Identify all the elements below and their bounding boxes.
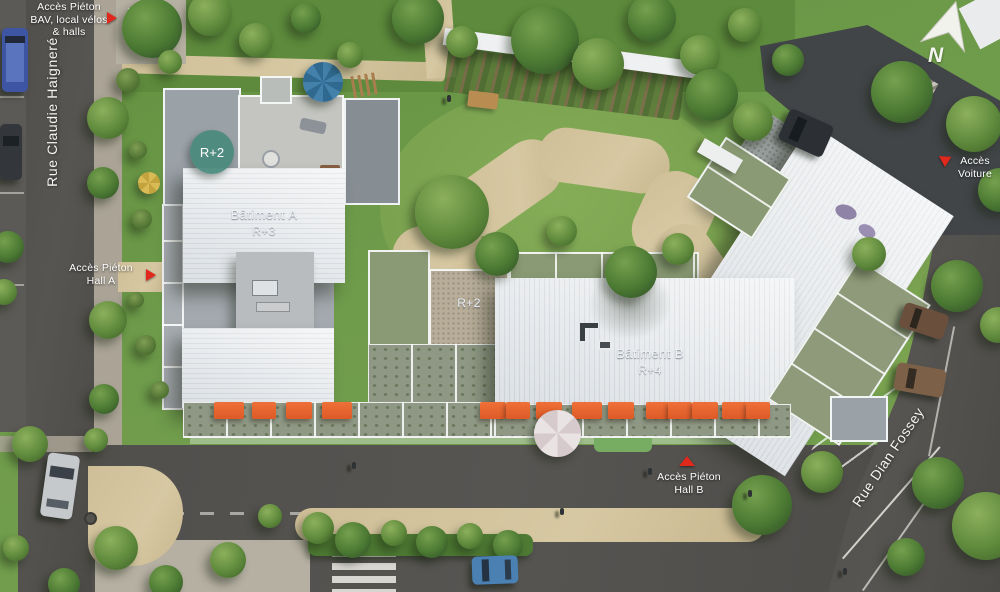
tree <box>128 292 144 308</box>
tree <box>136 335 156 355</box>
label-acces-bav: Accès Piéton BAV, local vélos & halls <box>22 1 116 39</box>
terrace-awning <box>646 402 670 419</box>
tree <box>772 44 804 76</box>
tree <box>149 565 183 592</box>
label-line: Hall A <box>60 275 142 288</box>
tree <box>416 526 448 558</box>
umbrella-yellow <box>138 172 160 194</box>
tree <box>475 232 519 276</box>
red-arrow-right-icon <box>146 269 156 281</box>
label-line: BAV, local vélos <box>22 14 116 27</box>
tree <box>662 233 694 265</box>
person <box>748 490 752 497</box>
terrace-awning <box>692 402 718 419</box>
label-batiment-b: Bâtiment B R+4 <box>505 346 795 377</box>
wood-frame <box>350 72 381 99</box>
terrace-awning <box>252 402 276 419</box>
car-glass <box>909 308 922 329</box>
tree <box>946 96 1000 152</box>
tree <box>887 538 925 576</box>
core-b-mark <box>580 323 585 341</box>
car-glass <box>46 498 69 509</box>
tree <box>48 568 80 592</box>
label-acces-hall-a: Accès Piéton Hall A <box>60 262 142 287</box>
car-glass <box>905 368 916 389</box>
tree <box>94 526 138 570</box>
tree <box>728 8 762 42</box>
tree <box>337 42 363 68</box>
tree <box>151 381 169 399</box>
terrace-a-east <box>344 98 400 205</box>
label-line: Accès Piéton <box>653 471 725 484</box>
car-dark <box>0 124 22 180</box>
tree <box>547 216 577 246</box>
tree <box>302 512 334 544</box>
label-line: Accès <box>950 155 1000 168</box>
umbrella-blue <box>303 62 343 102</box>
tree <box>511 6 579 74</box>
terrace-awning <box>668 402 692 419</box>
tree <box>89 301 127 339</box>
car-glass <box>49 466 74 480</box>
label-acces-hall-b: Accès Piéton Hall B <box>653 471 725 496</box>
red-arrow-right-icon <box>107 12 117 24</box>
tree <box>129 141 147 159</box>
tree <box>122 0 182 58</box>
badge-r2: R+2 <box>190 130 234 174</box>
manhole <box>84 512 97 525</box>
label-acces-voiture: Accès Voiture <box>950 155 1000 180</box>
terrace-awning <box>572 402 602 419</box>
car-glass <box>482 559 490 581</box>
tree <box>158 50 182 74</box>
terrace-awning <box>480 402 506 419</box>
crosswalk <box>332 550 396 592</box>
terrace-awning <box>746 402 770 419</box>
tree <box>686 69 738 121</box>
terrace-awning <box>608 402 634 419</box>
tree <box>3 535 29 561</box>
car-glass <box>3 136 19 146</box>
person <box>352 462 356 469</box>
terrace-mid-west <box>368 250 430 346</box>
tree <box>852 237 886 271</box>
tree <box>733 101 773 141</box>
skylight <box>252 280 278 296</box>
terrace-awning <box>286 402 312 419</box>
tree <box>84 428 108 452</box>
roof-a-south <box>182 328 334 408</box>
tree <box>415 175 489 249</box>
north-letter: N <box>928 44 943 68</box>
van-roof <box>6 42 24 82</box>
building-floors: R+4 <box>505 363 795 377</box>
tree <box>457 523 483 549</box>
label-line: Hall B <box>653 484 725 497</box>
red-arrow-up-icon <box>679 456 695 466</box>
tree <box>732 475 792 535</box>
tree <box>258 504 282 528</box>
tree <box>871 61 933 123</box>
table <box>262 150 280 168</box>
terrace-awning <box>322 402 352 419</box>
garden-mid <box>368 344 508 406</box>
label-batiment-a: Bâtiment A R+3 <box>183 207 345 238</box>
car-glass <box>505 559 512 579</box>
building-name: Bâtiment B <box>505 346 795 361</box>
label-annex-r2: R+2 <box>429 296 509 310</box>
parking-line <box>0 96 24 98</box>
tree <box>335 522 371 558</box>
tree <box>801 451 843 493</box>
label-line: Accès Piéton <box>60 262 142 275</box>
parking-line <box>0 192 24 194</box>
tree <box>89 384 119 414</box>
person <box>843 568 847 575</box>
terrace-b-corner <box>830 396 888 442</box>
tree <box>572 38 624 90</box>
terrace-a-box <box>260 76 292 104</box>
umbrella-white <box>534 410 581 457</box>
building-floors: R+3 <box>183 224 345 238</box>
person <box>648 468 652 475</box>
label-line: Voiture <box>950 168 1000 181</box>
tree <box>446 26 478 58</box>
terrace-awning <box>506 402 530 419</box>
balcony-strip-a <box>162 204 184 410</box>
tree <box>381 520 407 546</box>
label-line: & halls <box>22 26 116 39</box>
terrace-awning <box>214 402 244 419</box>
car-glass <box>788 116 807 142</box>
tree <box>210 542 246 578</box>
tree <box>87 97 129 139</box>
person <box>560 508 564 515</box>
site-plan: Accès Piéton BAV, local vélos & halls Ac… <box>0 0 1000 592</box>
tree <box>12 426 48 462</box>
tree <box>912 457 964 509</box>
skylight <box>256 302 290 312</box>
tree <box>931 260 983 312</box>
label-line: Accès Piéton <box>22 1 116 14</box>
tree <box>239 23 273 57</box>
car-blue <box>472 555 519 585</box>
tree <box>87 167 119 199</box>
tree <box>132 209 152 229</box>
person <box>447 95 451 102</box>
street-name-left: Rue Claudie Haigneré <box>44 37 60 187</box>
tree <box>605 246 657 298</box>
building-name: Bâtiment A <box>183 207 345 222</box>
tree <box>291 3 321 33</box>
tree <box>116 68 140 92</box>
